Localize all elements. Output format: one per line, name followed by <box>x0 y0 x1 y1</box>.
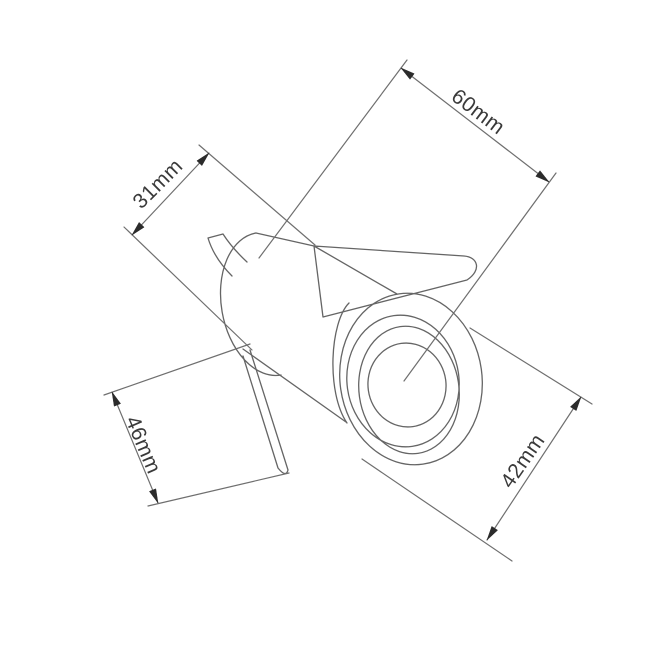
dimension-46mm: 46mm <box>104 344 289 506</box>
light-fixture <box>208 233 493 474</box>
spring-clip-top <box>314 246 477 317</box>
drawing-canvas: 60mm 31mm 46mm 42mm <box>0 0 668 668</box>
dimension-60mm-arrow-start <box>401 68 414 79</box>
dimension-60mm-extension-left <box>259 60 407 258</box>
body-bottom-edge <box>243 349 346 422</box>
flange-front-rim <box>329 284 494 474</box>
dimension-42mm: 42mm <box>362 328 592 561</box>
dimension-60mm: 60mm <box>259 60 556 381</box>
technical-drawing: 60mm 31mm 46mm 42mm <box>0 0 668 668</box>
dimension-46mm-arrow-start <box>112 392 121 406</box>
dimension-42mm-label: 42mm <box>496 430 549 493</box>
dimension-31mm-extension-upper <box>199 145 315 245</box>
dimension-60mm-line <box>401 68 549 182</box>
dimension-60mm-label: 60mm <box>447 85 509 140</box>
dimension-46mm-extension-upper <box>104 344 250 395</box>
dimension-46mm-arrow-end <box>149 489 158 503</box>
dimension-46mm-extension-lower <box>148 473 289 506</box>
dimension-42mm-arrow-start <box>487 526 498 540</box>
dimension-31mm: 31mm <box>124 145 315 350</box>
dimension-31mm-label: 31mm <box>129 155 188 214</box>
dimension-42mm-line <box>487 397 581 540</box>
dimension-31mm-extension-lower <box>124 227 252 350</box>
dimension-42mm-extension-upper <box>470 328 592 404</box>
flange-back-rim <box>333 303 349 423</box>
dimension-42mm-extension-lower <box>362 459 512 561</box>
spring-clip-bottom <box>243 350 288 474</box>
lens-ring <box>363 338 452 432</box>
body-top-edge <box>256 233 314 246</box>
dimension-42mm-arrow-end <box>570 397 581 411</box>
dimension-46mm-label: 46mm <box>121 413 166 478</box>
dimension-60mm-extension-leader <box>404 173 556 381</box>
dimension-60mm-arrow-end <box>536 171 549 182</box>
